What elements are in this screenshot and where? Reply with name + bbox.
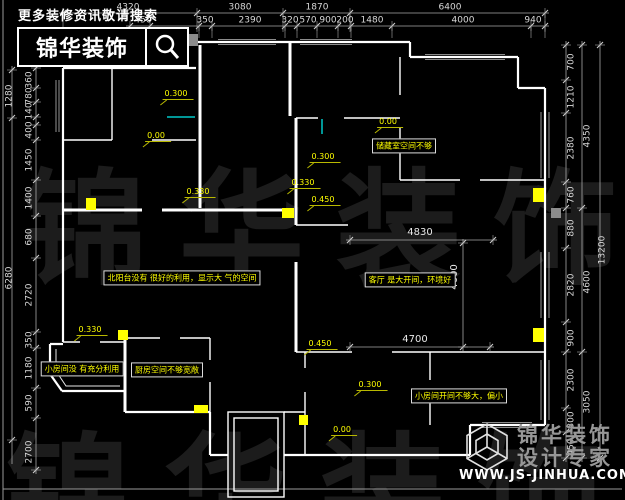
dimension-label: 4830: [407, 228, 432, 238]
dimension-label: 4000: [452, 17, 475, 26]
note-label: 储藏室空间不够: [372, 138, 436, 153]
dimension-label: 680: [26, 228, 35, 245]
dimension-label: 2700: [26, 441, 35, 464]
note-label: 厨房空间不够宽敞: [131, 362, 203, 377]
dimension-label: 570: [299, 17, 316, 26]
dimension-label: 200: [336, 17, 353, 26]
dimension-label: 1210: [568, 86, 577, 109]
dimension-label: 880: [568, 219, 577, 236]
note-label: 北阳台没有 很好的利用，显示大 气的空间: [103, 270, 260, 285]
elevation-marker: 0.330: [185, 188, 216, 198]
grid-markers: [186, 34, 561, 218]
elevation-marker: 0.450: [307, 340, 338, 350]
brand-cube-icon: [467, 424, 507, 470]
brand-slogan-text: 设计专家: [517, 447, 613, 468]
dimension-label: 2380: [568, 137, 577, 160]
elevation-marker: 0.00: [331, 426, 357, 436]
brand-url-text: WWW.JS-JINHUA.COM: [459, 468, 625, 483]
window-cyan-marks: [167, 117, 322, 134]
dimension-label: 2820: [568, 274, 577, 297]
dimension-label: 590: [26, 394, 35, 411]
dimension-label: 2720: [26, 284, 35, 307]
dimension-label: 4600: [584, 271, 593, 294]
dimension-label: 900: [568, 329, 577, 346]
note-label: 客厅 是大开间，环境好: [365, 272, 456, 287]
elevation-marker: 0.00: [145, 132, 171, 142]
dimension-label: 140: [26, 102, 35, 119]
dimension-label: 1870: [306, 4, 329, 13]
elevation-marker: 0.00: [377, 118, 403, 128]
dimension-label: 940: [524, 17, 541, 26]
elevation-marker: 0.300: [357, 381, 388, 391]
note-label: 小房间没 有充分利用: [41, 361, 124, 376]
dimension-label: 1480: [361, 17, 384, 26]
dimension-label: 1280: [6, 85, 15, 108]
dimension-label: 6400: [439, 4, 462, 13]
brand-search-logo: 锦华装饰: [17, 27, 189, 67]
dimension-label: 2300: [568, 369, 577, 392]
dimension-label: 4700: [402, 335, 427, 345]
dimension-label: 2390: [239, 17, 262, 26]
dimension-label: 13200: [599, 236, 608, 265]
dimension-label: 350: [26, 331, 35, 348]
elevation-marker: 0.300: [310, 153, 341, 163]
dimension-label: 700: [568, 53, 577, 70]
dimension-label: 760: [568, 186, 577, 203]
dimension-label: 3080: [229, 4, 252, 13]
dimension-label: 4350: [584, 125, 593, 148]
dimension-label: 320: [281, 17, 298, 26]
magnifier-icon: [147, 29, 187, 65]
brand-logo-text: 锦华装饰: [19, 29, 145, 65]
note-label: 小房间开间不够大，偏小: [411, 388, 507, 403]
brand-name-text: 锦华装饰: [517, 424, 613, 445]
dimension-label: 1450: [26, 149, 35, 172]
dimension-lines: [7, 8, 605, 474]
elevation-marker: 0.330: [77, 326, 108, 336]
elevation-marker: 0.330: [290, 179, 321, 189]
dimension-label: 1400: [26, 187, 35, 210]
dimension-label: 900: [319, 17, 336, 26]
dimension-label: 3050: [584, 391, 593, 414]
elevation-marker: 0.450: [310, 196, 341, 206]
dimension-label: 350: [196, 17, 213, 26]
search-hint-text: 更多装修资讯敬请搜索: [18, 5, 158, 24]
elevation-marker: 0.300: [163, 90, 194, 100]
dimension-label: 6280: [6, 267, 15, 290]
floorplan-canvas: 锦华装饰 锦华装饰: [0, 0, 625, 500]
dimension-label: 360: [26, 71, 35, 88]
dimension-label: 400: [26, 121, 35, 138]
windows: [56, 40, 549, 428]
dimension-label: 1180: [26, 357, 35, 380]
